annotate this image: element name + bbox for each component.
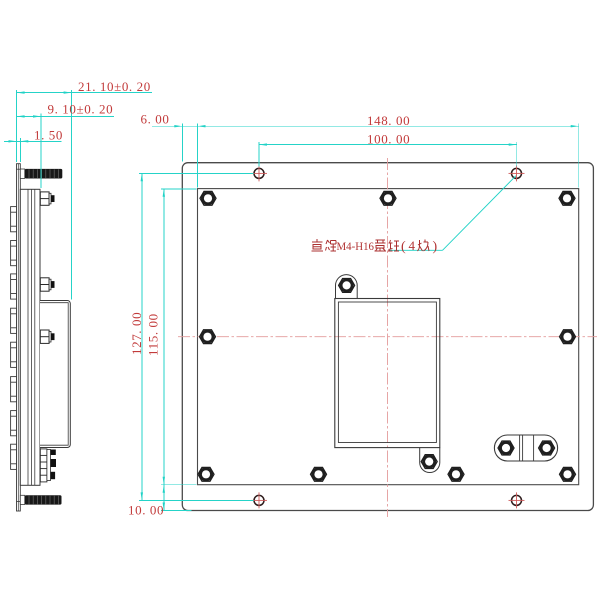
svg-text:6. 00: 6. 00 xyxy=(141,112,170,127)
svg-text:148. 00: 148. 00 xyxy=(367,113,410,128)
svg-text:1. 50: 1. 50 xyxy=(34,128,63,143)
svg-text:4: 4 xyxy=(409,238,416,253)
svg-text:): ) xyxy=(433,240,438,255)
svg-text:M4-H16: M4-H16 xyxy=(337,239,375,253)
svg-text:9. 10±0. 20: 9. 10±0. 20 xyxy=(48,102,114,117)
svg-text:100. 00: 100. 00 xyxy=(367,131,410,146)
svg-text:(: ( xyxy=(401,240,406,255)
svg-text:10. 00: 10. 00 xyxy=(128,503,164,518)
svg-text:115. 00: 115. 00 xyxy=(145,313,160,356)
svg-text:127. 00: 127. 00 xyxy=(129,312,144,355)
svg-text:21. 10±0. 20: 21. 10±0. 20 xyxy=(78,79,151,94)
